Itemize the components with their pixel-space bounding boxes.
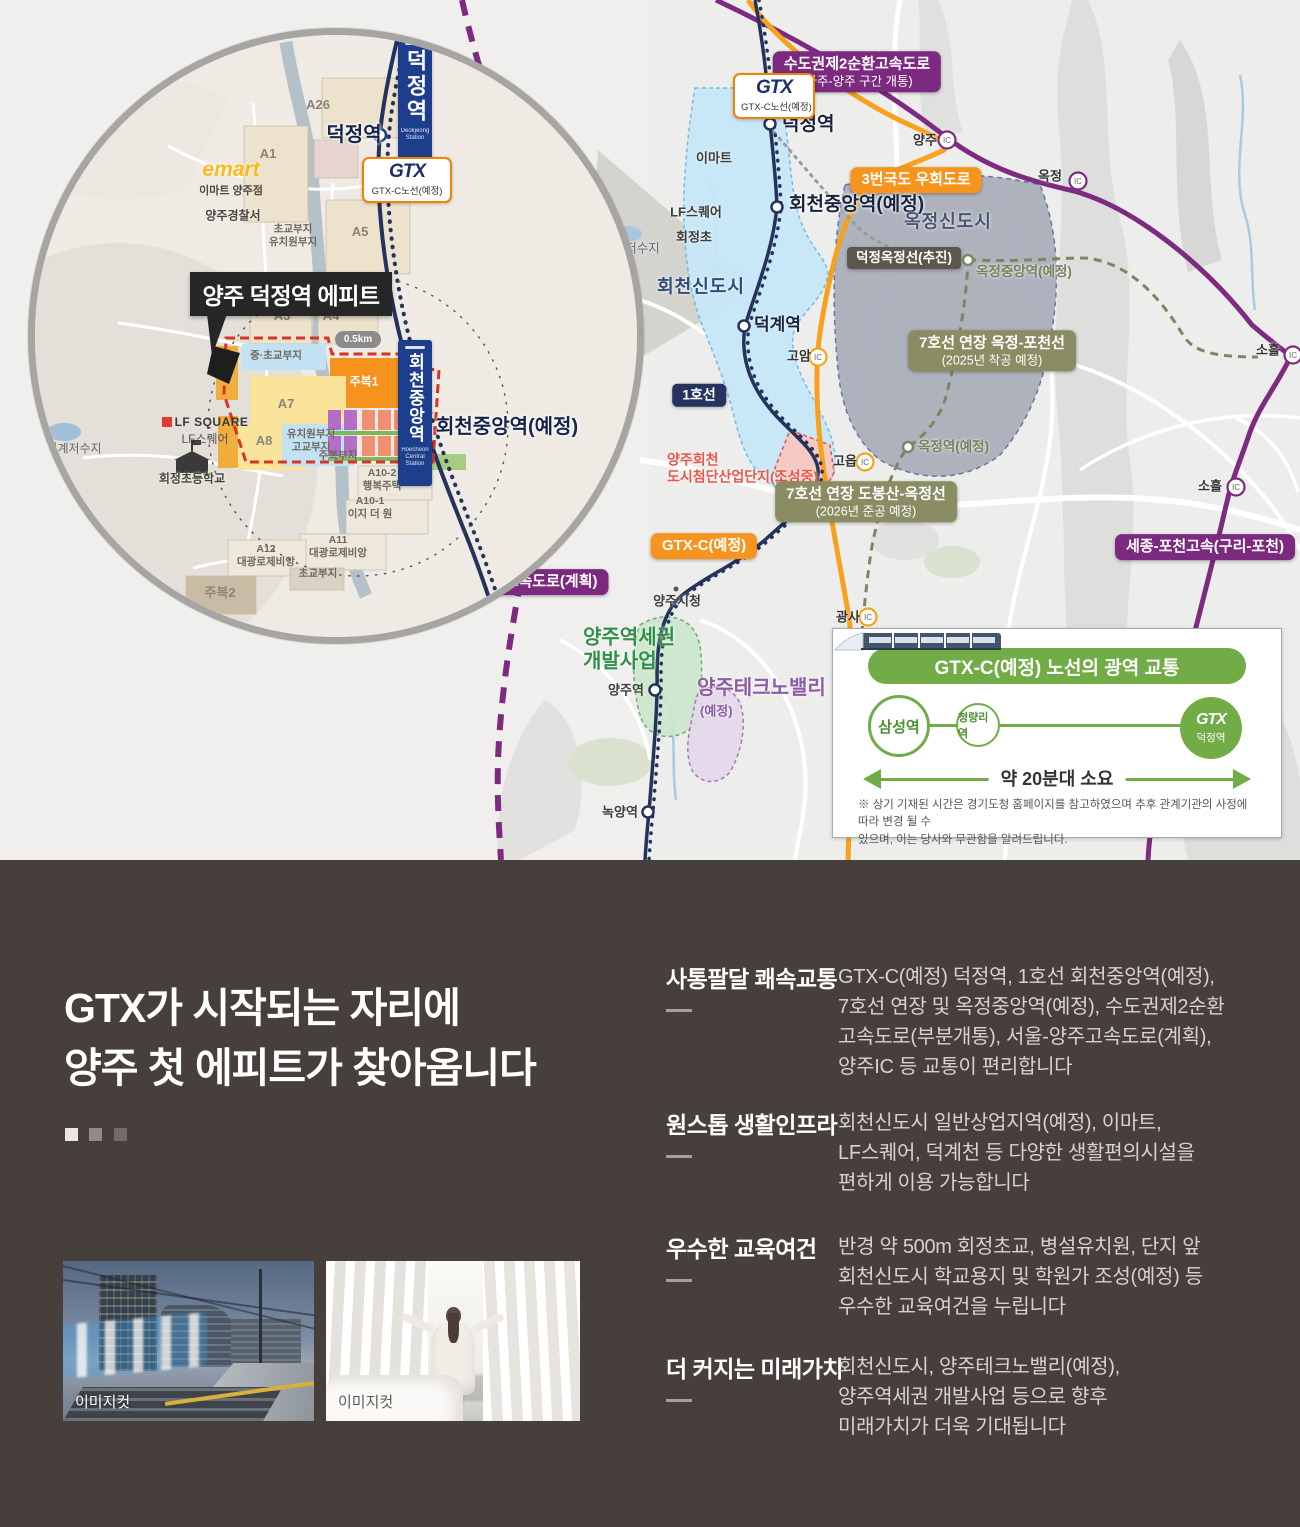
map-label: 옥정신도시 <box>904 211 992 232</box>
map-label: 회천신도시 <box>657 276 745 297</box>
map-label: 이마트 <box>696 150 732 165</box>
map-label: (예정) <box>700 703 733 718</box>
map-label: 덕계역 <box>754 315 801 335</box>
feature-future-value: 더 커지는 미래가치 회천신도시, 양주테크노밸리(예정), 양주역세권 개발사… <box>666 1350 1276 1402</box>
carousel-dot[interactable] <box>114 1128 127 1141</box>
photo-curtain-right <box>483 1261 580 1421</box>
hoecheon-central-station-sign: 회천중앙역 Hoecheon Central Station <box>398 340 432 486</box>
page: IC IC IC IC IC IC IC 수도권제2순환고속도로(파주-양주 구… <box>0 0 1300 1527</box>
gtx-info-box: GTX-C(예정) 노선의 광역 교통 삼성역 청량리역 GTX 덕정역 <box>832 628 1282 838</box>
map-label: 소흘 <box>1256 342 1280 357</box>
feature-dash <box>666 1009 692 1012</box>
inset-label: 주복1 <box>350 375 379 390</box>
feature-education: 우수한 교육여건 반경 약 500m 회정초교, 병설유치원, 단지 앞 회천신… <box>666 1230 1276 1282</box>
carousel-dot-active[interactable] <box>65 1128 78 1141</box>
photo-pole <box>259 1269 262 1369</box>
carousel-dots <box>65 1128 134 1146</box>
korail-mark <box>405 42 425 45</box>
inset-map: A26A1덕정역양주경찰서초교부지 유치원부지A5A3A4중·초교부지주복1A7… <box>28 28 644 644</box>
map-label: 옥정중앙역(예정) <box>976 264 1072 280</box>
train-icon <box>833 629 1003 655</box>
feature-dash <box>666 1279 692 1282</box>
feature-body: 반경 약 500m 회정초교, 병설유치원, 단지 앞 회천신도시 학교용지 및… <box>838 1232 1276 1322</box>
map-label: 양주테크노밸리 <box>697 677 826 701</box>
lf-square-poi: LF SQUARE LF스퀘어 <box>147 415 263 447</box>
map-label: 소흘 <box>1198 478 1222 493</box>
emart-logo: emart <box>185 159 277 180</box>
map-label: 회정초 <box>676 229 712 244</box>
lf-square-icon <box>162 417 172 427</box>
inset-label: 주복부지 <box>319 450 358 463</box>
inset-label: A11 대광로제비앙 <box>309 534 367 560</box>
feature-dash <box>666 1399 692 1402</box>
map-label: 녹양역 <box>602 804 638 819</box>
disclaimer-note: ※ 상기 기재된 시간은 경기도청 홈페이지를 참고하였으며 추후 관계기관의 … <box>858 797 1258 849</box>
inset-label: 회천중앙역(예정) <box>436 415 578 439</box>
map-label: 양주 <box>913 132 937 147</box>
deokjeong-gtx-node: GTX 덕정역 <box>1180 697 1242 759</box>
map-label: 세종-포천고속(구리-포천) <box>1115 534 1295 560</box>
inset-gtx-line-badge: GTX GTX-C노선(예정) <box>362 157 452 203</box>
inset-label: A5 <box>352 224 369 240</box>
inset-label: 덕정역 <box>326 123 381 147</box>
site-name-label: 양주 덕정역 에피트 <box>190 272 392 316</box>
feature-body: 회천신도시, 양주테크노밸리(예정), 양주역세권 개발사업 등으로 향후 미래… <box>838 1352 1276 1442</box>
map-label: 고암 <box>787 348 811 363</box>
korail-mark <box>405 346 425 349</box>
map-label: 양주회천 도시첨단산업단지(조성중) <box>667 451 818 484</box>
feature-body: 회천신도시 일반상업지역(예정), 이마트, LF스퀘어, 덕계천 등 다양한 … <box>838 1108 1276 1198</box>
feature-dash <box>666 1155 692 1158</box>
image-train-city: 이미지컷 <box>63 1261 314 1421</box>
map-label: 양주시청 <box>653 593 701 608</box>
map-label: GTX-C(예정) <box>651 533 757 559</box>
map-label: 7호선 연장 도봉산-옥정선(2026년 준공 예정) <box>775 481 957 522</box>
feature-infra: 원스톱 생활인프라 회천신도시 일반상업지역(예정), 이마트, LF스퀘어, … <box>666 1106 1276 1158</box>
inset-label: 초교부지 유치원부지 <box>269 223 317 249</box>
emart-poi: emart 이마트 양주점 <box>185 159 277 198</box>
inset-label: A26 <box>306 97 330 113</box>
lf-square-logo: LF SQUARE <box>147 415 263 429</box>
route-line <box>899 724 1211 727</box>
carousel-dot[interactable] <box>89 1128 102 1141</box>
inset-label: 중·초교부지 <box>250 350 302 363</box>
gtx-logo: GTX <box>741 78 807 97</box>
cheongnyangni-station-node: 청량리역 <box>956 703 1000 747</box>
transit-map: IC IC IC IC IC IC IC 수도권제2순환고속도로(파주-양주 구… <box>0 0 1300 860</box>
photo-building <box>231 1319 301 1367</box>
inset-label: 초교부지 <box>299 568 338 581</box>
inset-label: A12 대광로제비앙 <box>237 543 295 569</box>
site-label-tail <box>207 314 227 356</box>
map-label: LF스퀘어 <box>670 204 722 219</box>
duration-label: 약 20분대 소요 <box>989 765 1126 791</box>
inset-label: 주복2 <box>204 585 235 601</box>
map-label: 옥정 <box>1038 168 1062 183</box>
samseong-station-node: 삼성역 <box>868 695 930 757</box>
promo-section: GTX가 시작되는 자리에 양주 첫 에피트가 찾아옵니다 이미지컷 <box>0 860 1300 1527</box>
inset-label: A7 <box>278 396 295 412</box>
inset-label: A10-1 이지 더 원 <box>348 495 392 521</box>
image-caption: 이미지컷 <box>338 1391 393 1412</box>
map-label: 3번국도 우회도로 <box>850 167 981 193</box>
map-label: 고읍 <box>833 453 857 468</box>
inset-label: 회정초등학교 <box>159 472 225 487</box>
map-label: 덕정옥정선(추진) <box>847 247 961 269</box>
gtx-line-badge: GTX GTX-C노선(예정) <box>733 73 815 119</box>
image-caption: 이미지컷 <box>75 1391 130 1412</box>
map-label: 광사 <box>836 609 860 624</box>
map-label: 7호선 연장 옥정-포천선(2025년 착공 예정) <box>908 330 1076 371</box>
inset-label: A10-2 행복주택 <box>363 467 402 493</box>
map-label: 1호선 <box>672 384 726 407</box>
photo-person-hair <box>448 1313 459 1343</box>
map-label: 양주역 <box>608 682 644 697</box>
feature-body: GTX-C(예정) 덕정역, 1호선 회천중앙역(예정), 7호선 연장 및 옥… <box>838 962 1276 1082</box>
gtx-logo: GTX <box>370 162 444 181</box>
inset-label: 양주경찰서 <box>205 209 260 224</box>
headline: GTX가 시작되는 자리에 양주 첫 에피트가 찾아옵니다 <box>64 979 536 1098</box>
image-window-curtains: 이미지컷 <box>326 1261 580 1421</box>
map-label: 옥정역(예정) <box>918 439 989 455</box>
inset-label: 덕계저수지 <box>46 442 101 457</box>
duration-arrow: 약 20분대 소요 <box>863 769 1251 791</box>
feature-transport: 사통팔달 쾌속교통 GTX-C(예정) 덕정역, 1호선 회천중앙역(예정), … <box>666 960 1276 1012</box>
scale-badge: 0.5km <box>335 331 381 348</box>
